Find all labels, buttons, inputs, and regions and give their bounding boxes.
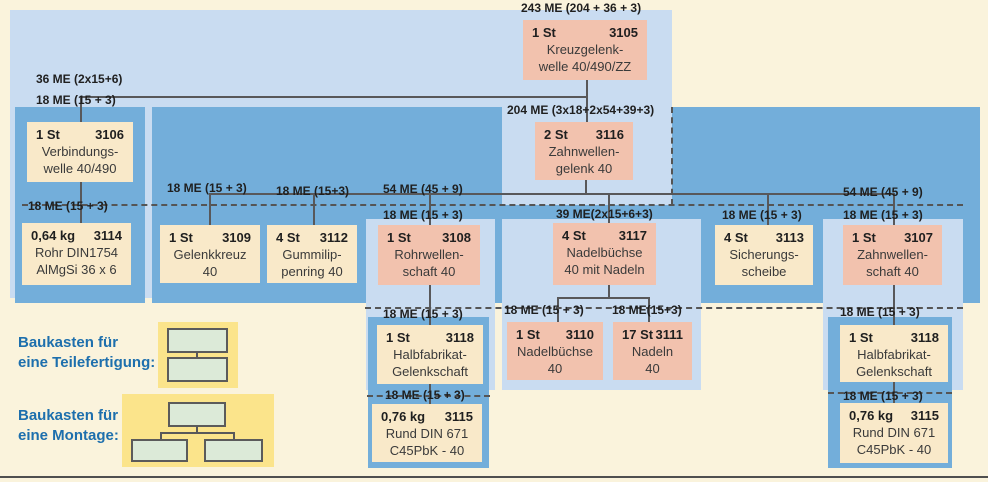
node-3118-right: 1 St3118 Halbfabrikat- Gelenkschaft xyxy=(840,325,948,382)
node-id: 3118 xyxy=(446,329,474,346)
node-title: Gelenkschaft xyxy=(377,363,483,380)
node-title: scheibe xyxy=(715,263,813,280)
edge-label-3114: 18 ME (15 + 3) xyxy=(28,199,108,213)
node-3117: 4 St3117 Nadelbüchse 40 mit Nadeln xyxy=(553,223,656,285)
node-title: schaft 40 xyxy=(378,263,480,280)
edge-label-3113: 18 ME (15 + 3) xyxy=(722,208,802,222)
node-qty: 4 St xyxy=(724,229,748,246)
edge-label-3108-lower: 18 ME (15 + 3) xyxy=(383,208,463,222)
edge-label-3107-lower: 18 ME (15 + 3) xyxy=(843,208,923,222)
node-qty: 1 St xyxy=(516,326,540,343)
node-qty: 2 St xyxy=(544,126,568,143)
edge-label-3112: 18 ME (15+3) xyxy=(276,184,349,198)
dashed-boundary-3116-right xyxy=(671,107,673,205)
node-qty: 1 St xyxy=(386,329,410,346)
node-title: C45PbK - 40 xyxy=(372,442,482,459)
edge-label-3106-upper: 36 ME (2x15+6) xyxy=(36,72,122,86)
node-id: 3117 xyxy=(619,227,647,244)
node-id: 3116 xyxy=(596,126,624,143)
node-3116: 2 St3116 Zahnwellen- gelenk 40 xyxy=(535,122,633,180)
node-id: 3105 xyxy=(609,24,638,41)
node-3107: 1 St3107 Zahnwellen- schaft 40 xyxy=(843,225,942,285)
edge-label-3106-lower: 18 ME (15 + 3) xyxy=(36,93,116,107)
legend-line: Baukasten für xyxy=(18,333,155,353)
edge-label-3108-upper: 54 ME (45 + 9) xyxy=(383,182,463,196)
node-id: 3118 xyxy=(911,329,939,346)
legend-box xyxy=(131,439,188,462)
node-title: 40 xyxy=(507,360,603,377)
node-title: Nadelbüchse xyxy=(507,343,603,360)
node-3105: 1 St3105 Kreuzgelenk- welle 40/490/ZZ xyxy=(523,20,647,80)
node-title: Gummilip- xyxy=(267,246,357,263)
edge-label-3115-left: 18 ME (15 + 3) xyxy=(385,388,465,402)
node-3115-right: 0,76 kg3115 Rund DIN 671 C45PbK - 40 xyxy=(840,403,948,463)
node-title: gelenk 40 xyxy=(535,160,633,177)
legend-box xyxy=(167,357,228,382)
node-3110: 1 St3110 Nadelbüchse 40 xyxy=(507,322,603,380)
node-id: 3115 xyxy=(911,407,939,424)
node-qty: 1 St xyxy=(532,24,556,41)
bottom-divider xyxy=(0,476,988,478)
node-title: 40 xyxy=(613,360,692,377)
node-title: 40 xyxy=(160,263,260,280)
legend-teilefertigung-label: Baukasten für eine Teilefertigung: xyxy=(18,333,155,373)
node-qty: 0,76 kg xyxy=(849,407,893,424)
legend-line: Baukasten für xyxy=(18,406,119,426)
node-id: 3107 xyxy=(904,229,933,246)
node-qty: 1 St xyxy=(169,229,193,246)
node-id: 3113 xyxy=(776,229,804,246)
node-qty: 4 St xyxy=(562,227,586,244)
node-3118-left: 1 St3118 Halbfabrikat- Gelenkschaft xyxy=(377,325,483,384)
node-3111: 17 St3111 Nadeln 40 xyxy=(613,322,692,380)
node-qty: 1 St xyxy=(387,229,411,246)
legend-montage-label: Baukasten für eine Montage: xyxy=(18,406,119,446)
node-3108: 1 St3108 Rohrwellen- schaft 40 xyxy=(378,225,480,285)
node-title: welle 40/490/ZZ xyxy=(523,58,647,75)
drop-3109 xyxy=(209,193,211,225)
node-qty: 0,64 kg xyxy=(31,227,75,244)
node-qty: 1 St xyxy=(849,329,873,346)
node-title: AlMgSi 36 x 6 xyxy=(22,261,131,278)
node-id: 3110 xyxy=(566,326,594,343)
node-3113: 4 St3113 Sicherungs- scheibe xyxy=(715,225,813,285)
legend-box xyxy=(168,402,226,427)
node-title: 40 mit Nadeln xyxy=(553,261,656,278)
node-title: Nadelbüchse xyxy=(553,244,656,261)
node-qty: 17 St xyxy=(622,326,653,343)
edge-label-3109: 18 ME (15 + 3) xyxy=(167,181,247,195)
legend-box xyxy=(167,328,228,353)
dashed-boundary-parts xyxy=(22,204,963,206)
edge-label-3110: 18 ME (15 + 3) xyxy=(504,303,584,317)
bom-structure-diagram: 1 St3105 Kreuzgelenk- welle 40/490/ZZ 1 … xyxy=(0,0,988,482)
edge-label-3116: 204 ME (3x18+2x54+39+3) xyxy=(507,103,654,117)
node-title: Sicherungs- xyxy=(715,246,813,263)
node-id: 3108 xyxy=(442,229,471,246)
edge-label-3111: 18 ME(15+3) xyxy=(612,303,682,317)
node-title: penring 40 xyxy=(267,263,357,280)
node-3115-left: 0,76 kg3115 Rund DIN 671 C45PbK - 40 xyxy=(372,404,482,462)
node-title: Rohrwellen- xyxy=(378,246,480,263)
node-qty: 4 St xyxy=(276,229,300,246)
node-id: 3111 xyxy=(656,326,684,343)
edge-label-3107-upper: 54 ME (45 + 9) xyxy=(843,185,923,199)
edge-label-3115-right: 18 ME (15 + 3) xyxy=(843,389,923,403)
node-title: Rohr DIN1754 xyxy=(22,244,131,261)
node-title: welle 40/490 xyxy=(27,160,133,177)
node-id: 3106 xyxy=(95,126,124,143)
node-3109: 1 St3109 Gelenkkreuz 40 xyxy=(160,225,260,283)
legend-connector xyxy=(160,432,235,434)
legend-line: eine Montage: xyxy=(18,426,119,446)
node-title: schaft 40 xyxy=(843,263,942,280)
connector-3105-3106 xyxy=(80,96,588,98)
node-id: 3109 xyxy=(222,229,251,246)
node-id: 3114 xyxy=(94,227,122,244)
node-title: Kreuzgelenk- xyxy=(523,41,647,58)
node-3112: 4 St3112 Gummilip- penring 40 xyxy=(267,225,357,283)
node-title: Halbfabrikat- xyxy=(377,346,483,363)
edge-label-3118-left: 18 ME (15 + 3) xyxy=(383,307,463,321)
node-qty: 1 St xyxy=(36,126,60,143)
node-title: Nadeln xyxy=(613,343,692,360)
node-title: Halbfabrikat- xyxy=(840,346,948,363)
edge-label-3117: 39 ME(2x15+6+3) xyxy=(556,207,653,221)
node-3114: 0,64 kg3114 Rohr DIN1754 AlMgSi 36 x 6 xyxy=(22,223,131,285)
legend-box xyxy=(204,439,263,462)
node-title: Zahnwellen- xyxy=(535,143,633,160)
edge-label-3118-right: 18 ME (15 + 3) xyxy=(840,305,920,319)
bracket-3117-children xyxy=(557,297,650,299)
node-title: C45PbK - 40 xyxy=(840,441,948,458)
node-title: Gelenkschaft xyxy=(840,363,948,380)
legend-montage-icon xyxy=(122,394,274,467)
edge-label-root: 243 ME (204 + 36 + 3) xyxy=(521,1,641,15)
node-qty: 0,76 kg xyxy=(381,408,425,425)
node-id: 3115 xyxy=(445,408,473,425)
node-title: Rund DIN 671 xyxy=(840,424,948,441)
node-3106: 1 St3106 Verbindungs- welle 40/490 xyxy=(27,122,133,182)
node-qty: 1 St xyxy=(852,229,876,246)
legend-teilefertigung-icon xyxy=(158,322,238,388)
node-title: Verbindungs- xyxy=(27,143,133,160)
node-title: Gelenkkreuz xyxy=(160,246,260,263)
node-title: Zahnwellen- xyxy=(843,246,942,263)
legend-line: eine Teilefertigung: xyxy=(18,353,155,373)
node-id: 3112 xyxy=(320,229,348,246)
node-title: Rund DIN 671 xyxy=(372,425,482,442)
